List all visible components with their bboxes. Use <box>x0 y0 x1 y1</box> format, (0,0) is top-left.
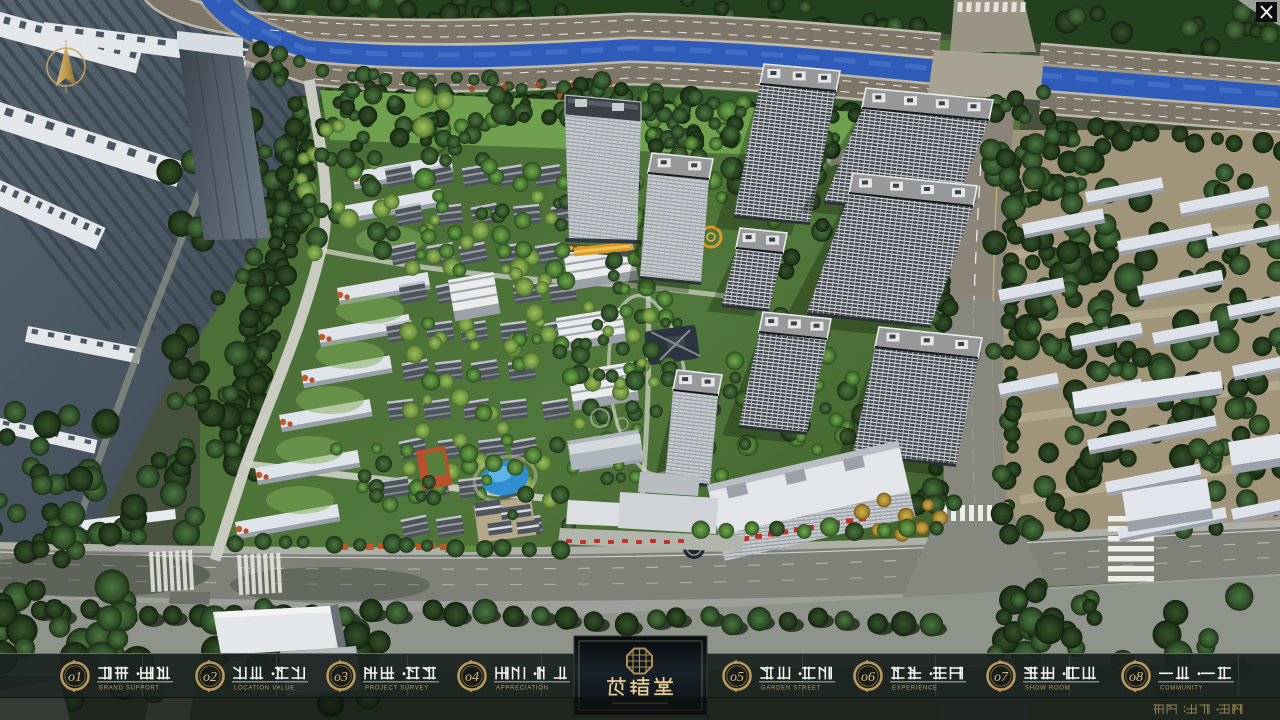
svg-text:PROJECT SURVEY: PROJECT SURVEY <box>365 686 429 692</box>
svg-text:o7: o7 <box>994 670 1009 685</box>
svg-text:o5: o5 <box>730 670 744 685</box>
svg-text:LOCATION VALUE: LOCATION VALUE <box>234 686 295 692</box>
svg-text:o3: o3 <box>334 670 348 685</box>
svg-text:SHOW ROOM: SHOW ROOM <box>1025 686 1070 692</box>
svg-text:o2: o2 <box>203 670 217 685</box>
svg-text:APPRECIATION: APPRECIATION <box>496 686 549 692</box>
svg-text:COMMUNITY: COMMUNITY <box>1160 686 1203 692</box>
svg-text:GARDEN STREET: GARDEN STREET <box>761 686 821 692</box>
svg-text:o6: o6 <box>861 670 875 685</box>
svg-text:o1: o1 <box>68 670 82 685</box>
svg-text:o4: o4 <box>465 670 479 685</box>
svg-text:EXPERIENCE: EXPERIENCE <box>892 686 938 692</box>
svg-text:o8: o8 <box>1129 670 1143 685</box>
svg-text:BRAND SUPPORT: BRAND SUPPORT <box>99 686 160 692</box>
